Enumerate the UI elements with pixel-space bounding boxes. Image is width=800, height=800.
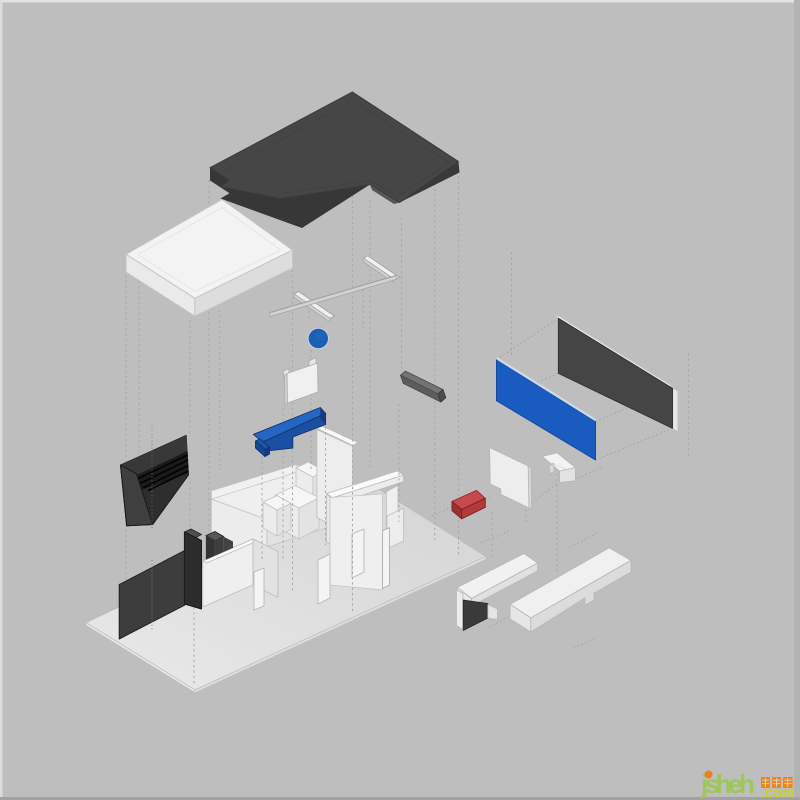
svg-text:.com: .com: [760, 785, 795, 800]
